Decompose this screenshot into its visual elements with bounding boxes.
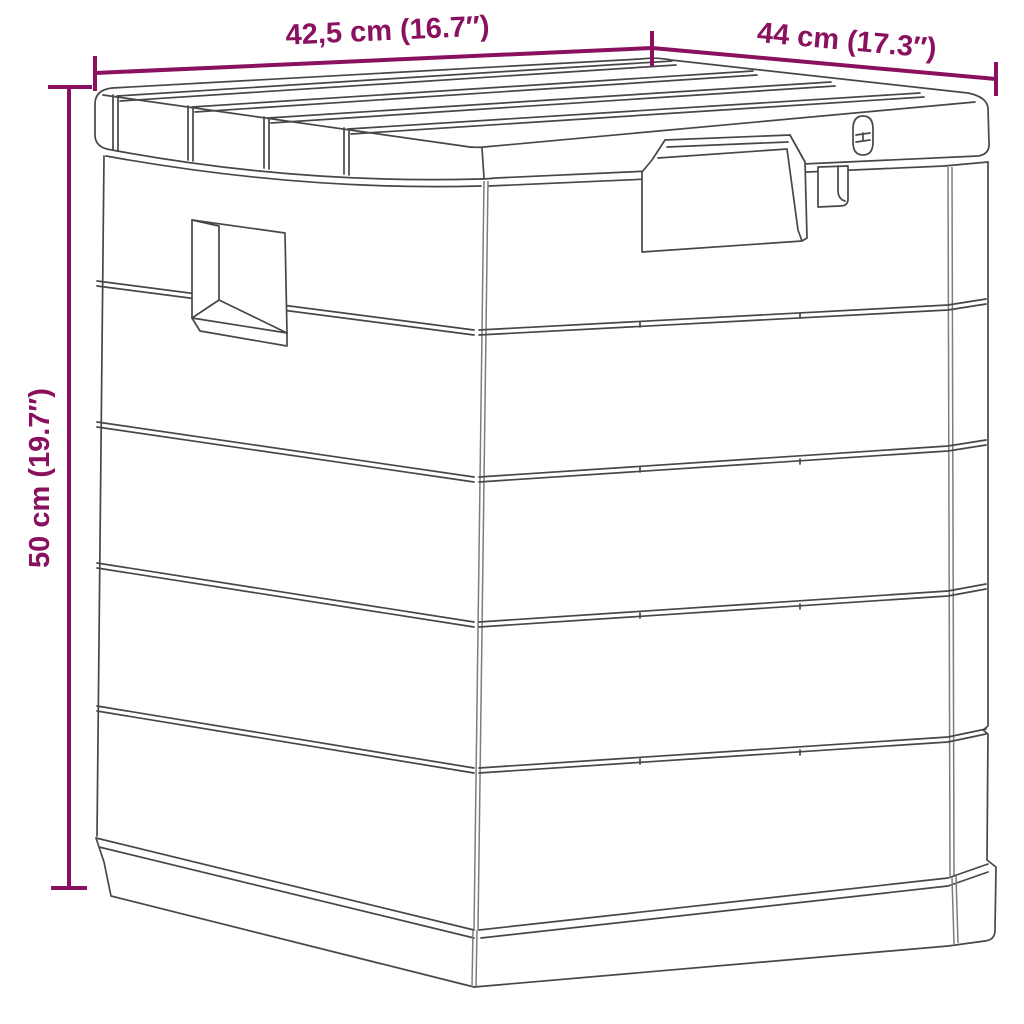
body-left-edge bbox=[97, 156, 104, 836]
padlock-hasp bbox=[853, 116, 873, 155]
lid-latch-recess bbox=[642, 135, 807, 252]
product-dimension-diagram: 42,5 cm (16.7″) 44 cm (17.3″) 50 cm (19.… bbox=[0, 0, 1024, 1024]
storage-box-drawing bbox=[95, 58, 996, 987]
lid-plank-grooves bbox=[117, 61, 924, 134]
body-right-corner-edge bbox=[948, 167, 954, 876]
handle-opening bbox=[192, 220, 287, 333]
plinth-left-face bbox=[96, 838, 474, 987]
plinth-right-face bbox=[474, 860, 996, 987]
groove-seam-ticks bbox=[640, 313, 800, 764]
body-near-corner-edge bbox=[474, 181, 488, 930]
side-handle-cutout bbox=[192, 220, 287, 346]
body-top-edges bbox=[106, 156, 988, 187]
panel-grooves-right-face bbox=[479, 299, 986, 773]
height-dimension-label: 50 cm (19.7″) bbox=[24, 388, 56, 568]
plinth-right-corner bbox=[952, 876, 958, 944]
width-dimension-label: 42,5 cm (16.7″) bbox=[285, 10, 490, 51]
dimension-annotations: 42,5 cm (16.7″) 44 cm (17.3″) 50 cm (19.… bbox=[24, 10, 996, 888]
panel-grooves-left-face bbox=[97, 281, 474, 773]
storage-box-dimension-drawing: 42,5 cm (16.7″) 44 cm (17.3″) 50 cm (19.… bbox=[0, 0, 1024, 1024]
lock-tab bbox=[818, 166, 848, 207]
body-right-silhouette bbox=[983, 162, 988, 860]
depth-dimension-line bbox=[652, 48, 996, 96]
base-plinth bbox=[96, 838, 996, 987]
